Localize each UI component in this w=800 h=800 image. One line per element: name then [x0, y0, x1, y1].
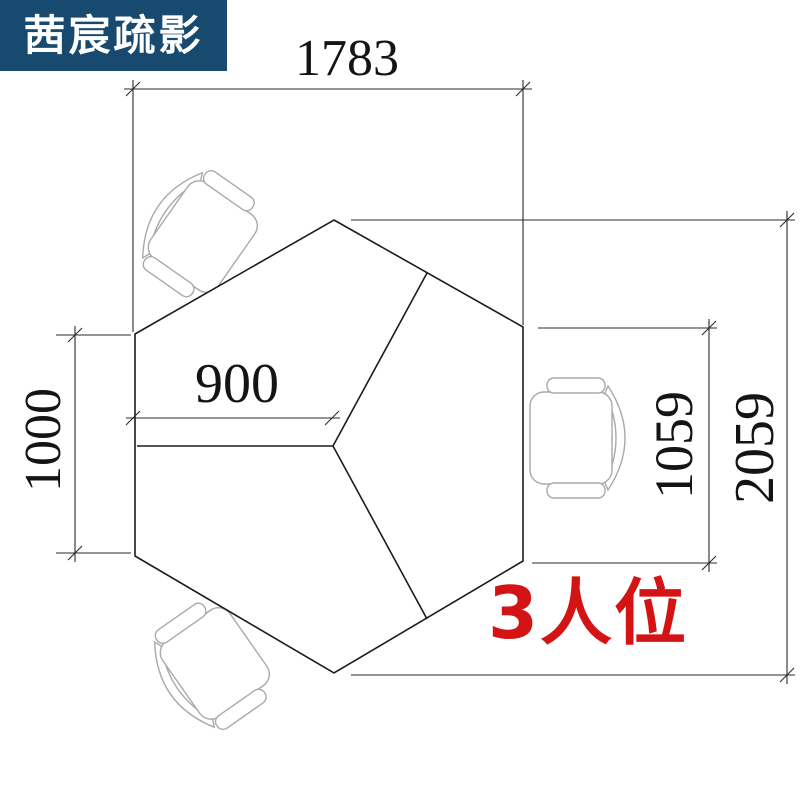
dimension-left-height: [56, 326, 131, 562]
product-diagram-canvas: 茜宸疏影 1783 900 1000 1059 2059 3人位: [0, 0, 800, 800]
seat-count-label: 3人位: [468, 574, 708, 653]
brand-logo: 茜宸疏影: [0, 0, 227, 71]
brand-logo-text: 茜宸疏影: [23, 15, 203, 57]
floor-plan-drawing: [0, 0, 800, 800]
office-chair-right-icon: [530, 378, 625, 498]
